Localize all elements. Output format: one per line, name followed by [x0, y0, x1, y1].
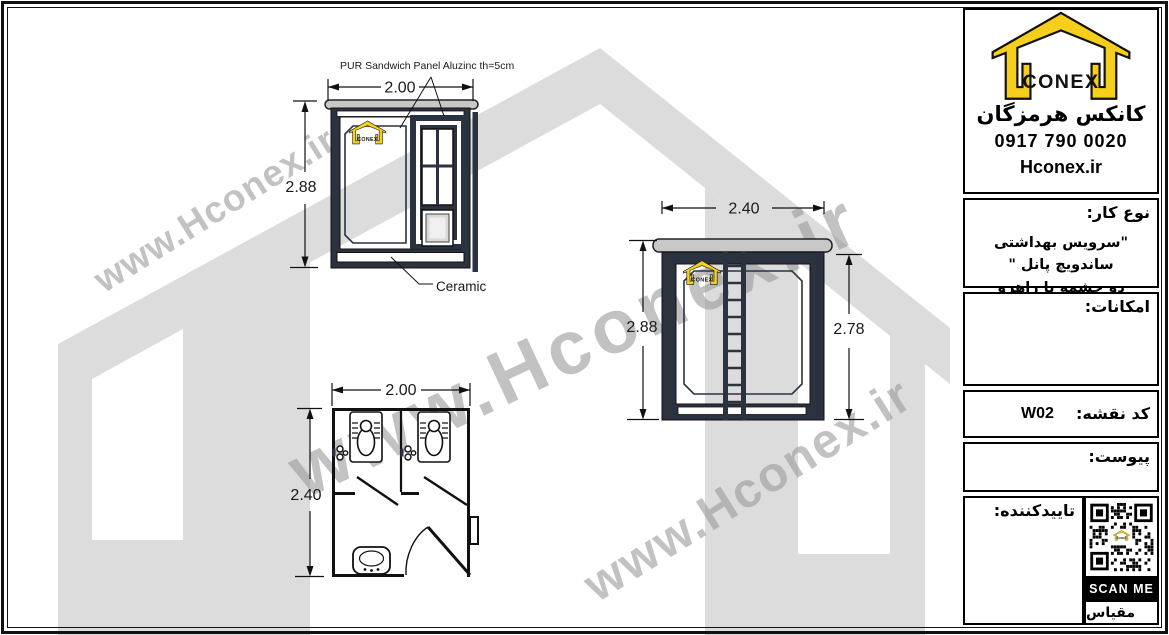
- front-height-dim: 2.88: [285, 179, 316, 196]
- wall-logo: [349, 121, 386, 144]
- plan-depth-dim: 2.40: [290, 487, 321, 504]
- wall-vent-box: [470, 517, 478, 544]
- side-height-right-dim: 2.78: [833, 321, 864, 338]
- stall-door-swing: [357, 477, 398, 505]
- ceramic-note: Ceramic: [436, 279, 487, 294]
- front-width-dim: 2.00: [384, 80, 415, 97]
- entry-door: [406, 527, 470, 575]
- drawing-sheet: CONEX www.Hconex.ir www.Hconex.ir www.Hc…: [0, 0, 1169, 635]
- panel-note: PUR Sandwich Panel Aluzinc th=5cm: [340, 60, 514, 72]
- squat-toilet: [350, 412, 382, 462]
- ceramic-strip: [337, 253, 464, 263]
- side-width-dim: 2.40: [728, 201, 759, 218]
- door-leaf: [428, 527, 470, 575]
- floor-plan-view: 2.00 2.40: [290, 382, 478, 577]
- door: [410, 115, 467, 249]
- side-height-left-dim: 2.88: [626, 319, 657, 336]
- side-elevation-view: 2.40 2.88 2.78: [626, 201, 864, 421]
- roof-cap: [653, 239, 832, 252]
- squat-toilet: [418, 412, 450, 462]
- door-swing-arc: [406, 527, 428, 575]
- stall-door-swing: [424, 477, 467, 505]
- side-wall-return: [473, 112, 479, 272]
- sink: [353, 547, 390, 574]
- plan-width-dim: 2.00: [385, 382, 416, 399]
- front-elevation-view: 2.00 2.88 PUR Sandwich Panel Aluzinc th=…: [285, 60, 514, 294]
